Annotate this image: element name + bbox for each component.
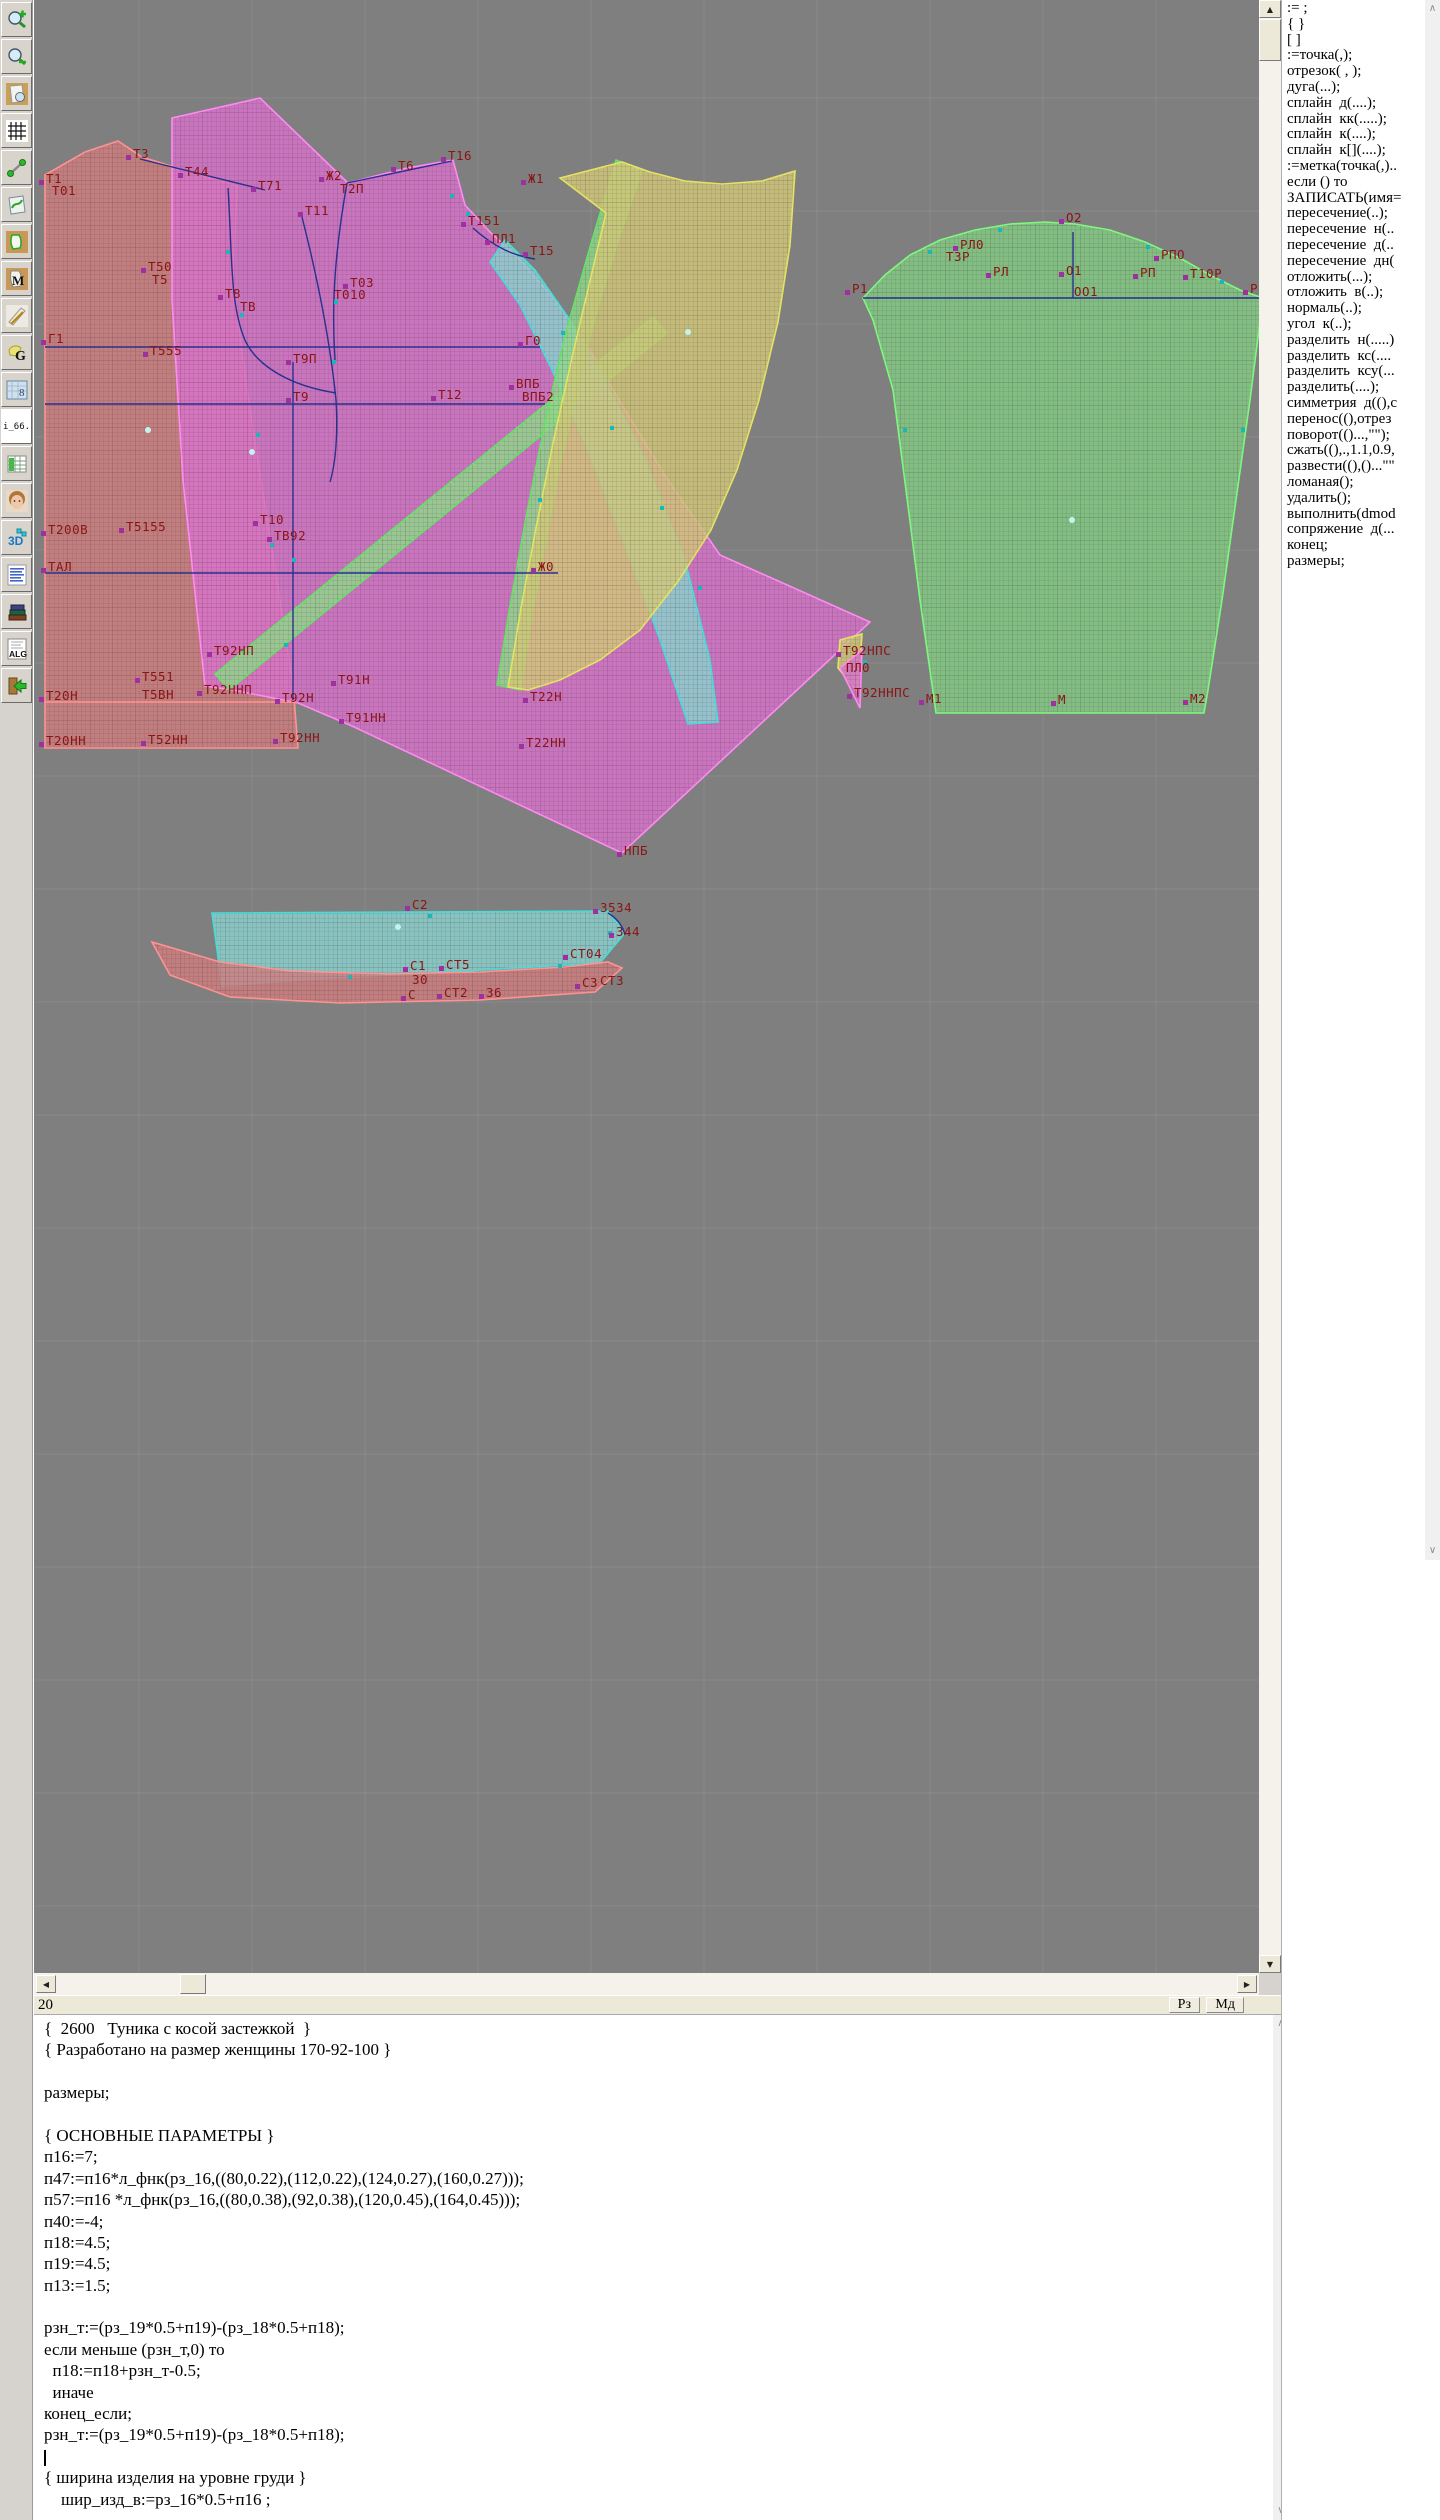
point-label: Т551 xyxy=(142,669,174,684)
pattern-point[interactable] xyxy=(331,681,336,686)
pattern-point[interactable] xyxy=(1243,290,1248,295)
point-label: О1 xyxy=(1066,263,1082,278)
curve-tick[interactable] xyxy=(270,543,274,547)
point-label: Т010 xyxy=(334,287,366,302)
point-label: Т20Н xyxy=(46,688,78,703)
pattern-cad-window: MG8i_66.3DALG Т1Т01Т3Т44Т71Ж2Т2ПТ11Т6Т16… xyxy=(0,0,1440,2520)
point-label: РП xyxy=(1140,265,1156,280)
curve-tick[interactable] xyxy=(450,194,454,198)
scroll-down-button[interactable]: ▼ xyxy=(1259,1955,1281,1973)
point-label: Т200В xyxy=(48,522,88,537)
editor-line[interactable]: { 2600 Туника с косой застежкой } xyxy=(44,2019,1268,2040)
point-label: Т151 xyxy=(468,213,500,228)
command-item[interactable]: := ; xyxy=(1287,1,1425,17)
point-label: Т92НН xyxy=(280,730,320,745)
exit-button[interactable] xyxy=(1,668,32,703)
pattern-point[interactable] xyxy=(286,360,291,365)
curve-tick[interactable] xyxy=(284,643,288,647)
point-label: ВПБ2 xyxy=(522,389,554,404)
editor-line[interactable]: рзн_т:=(рз_19*0.5+п19)-(рз_18*0.5+п18); xyxy=(44,2425,1268,2446)
editor-line[interactable]: п19:=4.5; xyxy=(44,2254,1268,2275)
point-label: Т91НН xyxy=(346,710,386,725)
point-label: РЛ xyxy=(993,264,1009,279)
pattern-point[interactable] xyxy=(437,994,442,999)
command-item[interactable]: { } xyxy=(1287,17,1425,33)
library-button[interactable] xyxy=(1,594,32,629)
point-label: Т91Н xyxy=(338,672,370,687)
pattern-point[interactable] xyxy=(275,699,280,704)
toolbar: MG8i_66.3DALG xyxy=(0,0,33,2520)
command-item[interactable]: сопряжение д(... xyxy=(1287,522,1425,538)
pattern-point[interactable] xyxy=(845,290,850,295)
point-label: ТВ92 xyxy=(274,528,306,543)
point-label: Т92НП xyxy=(214,643,254,658)
size-table-button[interactable] xyxy=(1,446,32,481)
pattern-point[interactable] xyxy=(1059,219,1064,224)
svg-text:G: G xyxy=(15,349,26,364)
scroll-left-button[interactable]: ◀ xyxy=(36,1975,56,1993)
point-label: Т92ННП xyxy=(204,682,252,697)
curve-tick[interactable] xyxy=(561,331,565,335)
pattern-point[interactable] xyxy=(286,398,291,403)
point-label: Т12 xyxy=(438,387,462,402)
point-label: С3 xyxy=(582,975,598,990)
zoom-in-button[interactable] xyxy=(1,2,32,37)
point-label: Т555 xyxy=(150,343,182,358)
pattern-point[interactable] xyxy=(197,691,202,696)
pattern-point[interactable] xyxy=(39,742,44,747)
editor-line[interactable]: { ширина изделия на уровне груди } xyxy=(44,2468,1268,2489)
pattern-point[interactable] xyxy=(518,342,523,347)
drawing-canvas[interactable]: Т1Т01Т3Т44Т71Ж2Т2ПТ11Т6Т16Ж1Т151ПЛ1Т15Т5… xyxy=(34,0,1259,1973)
point-label: Т15 xyxy=(530,243,554,258)
pattern-point[interactable] xyxy=(1183,275,1188,280)
point-label: Т16 xyxy=(448,148,472,163)
command-item[interactable]: разделить(....); xyxy=(1287,380,1425,396)
command-item[interactable]: разделить н(.....) xyxy=(1287,333,1425,349)
point-label: РПО xyxy=(1161,247,1185,262)
pattern-point[interactable] xyxy=(519,744,524,749)
point-label: Т6 xyxy=(398,158,414,173)
pattern-point[interactable] xyxy=(141,741,146,746)
point-label: Т9 xyxy=(293,389,309,404)
pattern-point[interactable] xyxy=(319,177,324,182)
pattern-point[interactable] xyxy=(479,994,484,999)
curve-tick[interactable] xyxy=(428,914,432,918)
point-label: С2 xyxy=(412,897,428,912)
toolbar-file-label: i_66. xyxy=(2,410,31,443)
piece-center-dot xyxy=(1069,517,1075,523)
point-label: ОО1 xyxy=(1074,284,1098,299)
pattern-point[interactable] xyxy=(178,173,183,178)
pattern-point[interactable] xyxy=(461,222,466,227)
point-label: СТ3 xyxy=(600,973,624,988)
pattern-point[interactable] xyxy=(39,697,44,702)
point-label: ТВ xyxy=(240,299,256,314)
editor-line[interactable] xyxy=(44,2105,1268,2126)
pattern-m-button[interactable]: M xyxy=(1,261,32,296)
canvas-horizontal-scrollbar[interactable]: ◀ ▶ xyxy=(34,1973,1259,1995)
editor-line[interactable] xyxy=(44,2297,1268,2318)
point-label: М2 xyxy=(1190,691,1206,706)
pattern-point[interactable] xyxy=(431,396,436,401)
pattern-point[interactable] xyxy=(1051,701,1056,706)
pattern-point[interactable] xyxy=(1133,274,1138,279)
editor-line[interactable]: п18:=п18+рзн_т-0.5; xyxy=(44,2361,1268,2382)
editor-line[interactable]: конец_если; xyxy=(44,2404,1268,2425)
command-item[interactable]: сплайн кк(.....); xyxy=(1287,112,1425,128)
canvas-vertical-scrollbar[interactable]: ▲ ▼ xyxy=(1259,0,1281,1973)
command-item[interactable]: размеры; xyxy=(1287,554,1425,570)
command-item[interactable]: отрезок( , ); xyxy=(1287,64,1425,80)
pattern-point[interactable] xyxy=(41,340,46,345)
pattern-point[interactable] xyxy=(563,955,568,960)
command-item[interactable]: [ ] xyxy=(1287,33,1425,49)
point-label: Ж0 xyxy=(538,559,554,574)
horizontal-scroll-thumb[interactable] xyxy=(180,1974,206,1994)
pattern-point[interactable] xyxy=(441,157,446,162)
editor-line[interactable]: размеры; xyxy=(44,2083,1268,2104)
pattern-point[interactable] xyxy=(593,909,598,914)
piece-center-dot xyxy=(685,329,691,335)
curve-tick[interactable] xyxy=(698,586,702,590)
pattern-point[interactable] xyxy=(986,273,991,278)
curve-tick[interactable] xyxy=(332,360,336,364)
editor-line[interactable]: п40:=-4; xyxy=(44,2212,1268,2233)
pattern-point[interactable] xyxy=(391,167,396,172)
point-label: Т3Р xyxy=(946,249,970,264)
file-i66-button[interactable]: i_66. xyxy=(1,409,32,444)
curve-tick[interactable] xyxy=(903,428,907,432)
grid-button[interactable] xyxy=(1,113,32,148)
pattern-point[interactable] xyxy=(126,155,131,160)
pattern-point[interactable] xyxy=(521,180,526,185)
point-label: 30 xyxy=(412,972,428,987)
measure-line-button[interactable] xyxy=(1,150,32,185)
editor-line[interactable]: { Разработано на размер женщины 170-92-1… xyxy=(44,2040,1268,2061)
panel-scroll-up-icon[interactable]: ∧ xyxy=(1425,2,1440,16)
editor-text[interactable]: { 2600 Туника с косой застежкой }{ Разра… xyxy=(44,2019,1268,2520)
command-item[interactable]: ЗАПИСАТЬ(имя= xyxy=(1287,191,1425,207)
point-label: 36 xyxy=(486,985,502,1000)
point-label: ПЛ0 xyxy=(846,660,870,675)
command-item[interactable]: перенос((),отрез xyxy=(1287,412,1425,428)
editor-line[interactable]: п47:=п16*л_фнк(рз_16,((80,0.22),(112,0.2… xyxy=(44,2169,1268,2190)
pattern-point[interactable] xyxy=(847,694,852,699)
command-item[interactable]: удалить(); xyxy=(1287,491,1425,507)
point-label: Т92Н xyxy=(282,690,314,705)
text-list-button[interactable] xyxy=(1,557,32,592)
editor-line[interactable]: иначе xyxy=(44,2383,1268,2404)
point-label: С xyxy=(408,987,416,1002)
algorithm-button[interactable]: ALG xyxy=(1,631,32,666)
point-label: Т5155 xyxy=(126,519,166,534)
pattern-point[interactable] xyxy=(439,966,444,971)
editor-line[interactable]: рзн_т:=(рз_19*0.5+п19)-(рз_18*0.5+п18); xyxy=(44,2318,1268,2339)
curve-tick[interactable] xyxy=(538,498,542,502)
point-label: М1 xyxy=(926,691,942,706)
point-label: Р1 xyxy=(852,281,868,296)
pattern-point[interactable] xyxy=(1154,256,1159,261)
point-label: Т2П xyxy=(340,181,364,196)
pattern-point[interactable] xyxy=(141,268,146,273)
point-label: Т92ННПС xyxy=(854,685,910,700)
editor-line[interactable]: шир_изд_в:=рз_16*0.5+п16 ; xyxy=(44,2490,1268,2511)
point-label: СТ5 xyxy=(446,957,470,972)
command-item[interactable]: сжать((),.,1.1,0.9, xyxy=(1287,443,1425,459)
point-label: Г1 xyxy=(48,331,64,346)
blueprint-button[interactable]: 8 xyxy=(1,372,32,407)
pattern-point[interactable] xyxy=(251,187,256,192)
pattern-point[interactable] xyxy=(39,180,44,185)
pattern-piece-button[interactable] xyxy=(1,224,32,259)
vertical-scroll-thumb[interactable] xyxy=(1259,19,1281,61)
svg-text:3D: 3D xyxy=(8,534,24,548)
point-label: Т8 xyxy=(225,286,241,301)
pattern-point[interactable] xyxy=(339,719,344,724)
scroll-right-button[interactable]: ▶ xyxy=(1237,1975,1257,1993)
curve-tick[interactable] xyxy=(348,975,352,979)
point-label: Т9П xyxy=(293,351,317,366)
command-item[interactable]: поворот(()...,""); xyxy=(1287,428,1425,444)
curve-tick[interactable] xyxy=(558,964,562,968)
command-list: := ;{ }[ ]:=точка(,);отрезок( , );дуга(.… xyxy=(1287,1,1425,570)
svg-text:ALG: ALG xyxy=(9,649,27,659)
draft-tools-button[interactable] xyxy=(1,298,32,333)
point-label: 344 xyxy=(616,924,640,939)
pattern-point[interactable] xyxy=(836,652,841,657)
pattern-point[interactable] xyxy=(143,352,148,357)
scrollbar-corner xyxy=(1259,1973,1281,1995)
curves-button[interactable] xyxy=(1,187,32,222)
piece-center-dot xyxy=(249,449,255,455)
command-item[interactable]: пересечение дн( xyxy=(1287,254,1425,270)
point-label: НПБ xyxy=(624,843,648,858)
point-label: С1 xyxy=(410,958,426,973)
command-item[interactable]: пересечение н(.. xyxy=(1287,222,1425,238)
pattern-point[interactable] xyxy=(523,252,528,257)
command-item[interactable]: развести((),()..."" xyxy=(1287,459,1425,475)
pattern-point[interactable] xyxy=(41,568,46,573)
command-item[interactable]: сплайн к[](....); xyxy=(1287,143,1425,159)
command-item[interactable]: ломаная(); xyxy=(1287,475,1425,491)
piece-center-dot xyxy=(395,924,401,930)
curve-tick[interactable] xyxy=(1241,428,1245,432)
editor-line[interactable]: п18:=4.5; xyxy=(44,2233,1268,2254)
model-mode-button[interactable]: Мд xyxy=(1206,1997,1244,2013)
point-label: Т92НПС xyxy=(843,643,891,658)
pattern-point[interactable] xyxy=(207,652,212,657)
pattern-point[interactable] xyxy=(919,700,924,705)
panel-scrollbar[interactable]: ∧ ∨ xyxy=(1425,0,1440,1560)
pattern-point[interactable] xyxy=(218,295,223,300)
scroll-up-button[interactable]: ▲ xyxy=(1259,0,1281,18)
piece-center-dot xyxy=(145,427,151,433)
command-item[interactable]: нормаль(..); xyxy=(1287,301,1425,317)
command-item[interactable]: если () то xyxy=(1287,175,1425,191)
point-label: СТ04 xyxy=(570,946,602,961)
pattern-point[interactable] xyxy=(119,528,124,533)
curve-tick[interactable] xyxy=(998,228,1002,232)
pattern-point[interactable] xyxy=(1183,700,1188,705)
point-label: Т20НН xyxy=(46,733,86,748)
svg-text:8: 8 xyxy=(19,387,25,399)
point-label: Ж1 xyxy=(528,171,544,186)
pattern-point[interactable] xyxy=(135,678,140,683)
command-item[interactable]: отложить(...); xyxy=(1287,270,1425,286)
pattern-point[interactable] xyxy=(267,537,272,542)
curve-tick[interactable] xyxy=(226,250,230,254)
curve-tick[interactable] xyxy=(928,250,932,254)
command-item[interactable]: разделить ксу(... xyxy=(1287,364,1425,380)
curve-tick[interactable] xyxy=(1146,245,1150,249)
point-label: Т10 xyxy=(260,512,284,527)
pattern-point[interactable] xyxy=(405,906,410,911)
editor-line[interactable]: п16:=7; xyxy=(44,2147,1268,2168)
point-label: Т5ВН xyxy=(142,687,174,702)
curve-tick[interactable] xyxy=(256,433,260,437)
code-editor[interactable]: { 2600 Туника с косой застежкой }{ Разра… xyxy=(34,2014,1290,2520)
point-label: СТ2 xyxy=(444,985,468,1000)
pattern-point[interactable] xyxy=(531,568,536,573)
pattern-point[interactable] xyxy=(523,698,528,703)
command-item[interactable]: пересечение(..); xyxy=(1287,206,1425,222)
pattern-point[interactable] xyxy=(298,212,303,217)
sizes-mode-button[interactable]: Рз xyxy=(1169,1997,1200,2013)
status-bar: 20 Рз Мд xyxy=(34,1995,1290,2014)
command-item[interactable]: разделить кс(.... xyxy=(1287,349,1425,365)
point-label: Т22НН xyxy=(526,735,566,750)
point-label: Т10Р xyxy=(1190,266,1222,281)
view-3d-button[interactable]: 3D xyxy=(1,520,32,555)
point-label: Т52НН xyxy=(148,732,188,747)
editor-line[interactable]: если меньше (рзн_т,0) то xyxy=(44,2340,1268,2361)
command-item[interactable]: выполнить(dmod xyxy=(1287,507,1425,523)
command-item[interactable]: дуга(...); xyxy=(1287,80,1425,96)
point-label: Т11 xyxy=(305,203,329,218)
point-label: Т44 xyxy=(185,164,209,179)
pattern-point[interactable] xyxy=(273,739,278,744)
zoom-out-button[interactable] xyxy=(1,39,32,74)
command-item[interactable]: пересечение д(.. xyxy=(1287,238,1425,254)
text-cursor xyxy=(44,2450,46,2466)
command-item[interactable]: :=точка(,); xyxy=(1287,48,1425,64)
pattern-point[interactable] xyxy=(253,521,258,526)
panel-scroll-down-icon[interactable]: ∨ xyxy=(1425,1544,1440,1558)
pattern-point[interactable] xyxy=(1059,272,1064,277)
pattern-point[interactable] xyxy=(403,967,408,972)
pattern-point[interactable] xyxy=(485,240,490,245)
pattern-g-button[interactable]: G xyxy=(1,335,32,370)
point-label: Т22Н xyxy=(530,689,562,704)
command-item[interactable]: сплайн к(....); xyxy=(1287,127,1425,143)
point-label: 3534 xyxy=(600,900,632,915)
pattern-point[interactable] xyxy=(617,852,622,857)
point-label: М xyxy=(1058,692,1066,707)
command-item[interactable]: :=метка(точка(,).. xyxy=(1287,159,1425,175)
editor-line[interactable]: { ОСНОВНЫЕ ПАРАМЕТРЫ } xyxy=(44,2126,1268,2147)
current-line-number: 20 xyxy=(38,1997,53,2014)
point-label: Т5 xyxy=(152,272,168,287)
point-label: ТАЛ xyxy=(48,559,72,574)
point-label: Т01 xyxy=(52,183,76,198)
point-label: Г0 xyxy=(525,333,541,348)
command-item[interactable]: угол к(..); xyxy=(1287,317,1425,333)
pattern-point[interactable] xyxy=(401,996,406,1001)
editor-line[interactable] xyxy=(44,2062,1268,2083)
pattern-point[interactable] xyxy=(509,385,514,390)
command-item[interactable]: сплайн д(....); xyxy=(1287,96,1425,112)
preview-pattern-button[interactable] xyxy=(1,76,32,111)
pattern-point[interactable] xyxy=(41,531,46,536)
model-photo-button[interactable] xyxy=(1,483,32,518)
point-label: О2 xyxy=(1066,210,1082,225)
command-item[interactable]: симметрия д((),с xyxy=(1287,396,1425,412)
curve-tick[interactable] xyxy=(610,426,614,430)
command-item[interactable]: отложить в(..); xyxy=(1287,285,1425,301)
curve-tick[interactable] xyxy=(292,558,296,562)
curve-tick[interactable] xyxy=(660,506,664,510)
command-template-panel: := ;{ }[ ]:=точка(,);отрезок( , );дуга(.… xyxy=(1281,0,1440,2520)
editor-line[interactable]: п13:=1.5; xyxy=(44,2276,1268,2297)
pattern-drawing[interactable]: Т1Т01Т3Т44Т71Ж2Т2ПТ11Т6Т16Ж1Т151ПЛ1Т15Т5… xyxy=(34,0,1259,1973)
svg-text:M: M xyxy=(12,273,24,288)
editor-line[interactable] xyxy=(44,2447,1268,2468)
point-label: Р2 xyxy=(1250,281,1259,296)
point-label: Т71 xyxy=(258,178,282,193)
editor-line[interactable]: п57:=п16 *л_фнк(рз_16,((80,0.38),(92,0.3… xyxy=(44,2190,1268,2211)
point-label: Т3 xyxy=(133,146,149,161)
pattern-point[interactable] xyxy=(609,933,614,938)
point-label: ПЛ1 xyxy=(492,231,516,246)
pattern-point[interactable] xyxy=(575,984,580,989)
command-item[interactable]: конец; xyxy=(1287,538,1425,554)
